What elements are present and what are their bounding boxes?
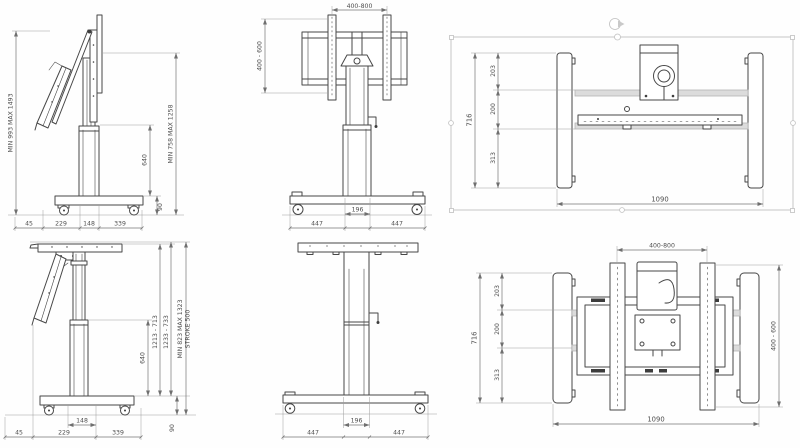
dim-depth-2: 200 <box>494 323 501 335</box>
view-front-elevated: 400-800 400 - 600 196 447 447 <box>240 0 450 235</box>
view-side-elevated: MIN 993 MAX 1493 MIN 758 MAX 1258 640 90… <box>0 0 240 235</box>
dim-base-right: 447 <box>393 430 405 437</box>
dim-base-left: 447 <box>307 430 319 437</box>
motor-unit-plan <box>640 45 678 100</box>
dim-depth-2: 229 <box>55 221 67 228</box>
dim-depth-overall: 716 <box>471 332 479 345</box>
dim-range-mid: 1233 - 733 <box>163 315 170 349</box>
dim-range-inner: 1213 - 713 <box>152 315 159 349</box>
dim-depth-1: 203 <box>490 65 497 77</box>
dim-column-width: 148 <box>76 418 88 425</box>
corner-mark-icon <box>450 209 454 213</box>
dim-vesa-height: 400 - 600 <box>257 41 264 71</box>
dim-base-right: 447 <box>391 221 403 228</box>
dim-depth-1: 45 <box>15 430 23 437</box>
dim-depth-overall: 716 <box>466 114 474 127</box>
dimensions: 716 203 200 313 1090 <box>466 53 764 207</box>
dim-base-mid: 196 <box>352 207 364 214</box>
dim-depth-3: 339 <box>112 430 124 437</box>
drawing-sheet: MIN 993 MAX 1493 MIN 758 MAX 1258 640 90… <box>0 0 800 448</box>
corner-mark-icon <box>791 209 795 213</box>
dim-depth-2: 200 <box>490 103 497 115</box>
dim-vesa-height: 400 - 600 <box>771 321 778 351</box>
dim-vesa-width: 400-800 <box>649 243 675 250</box>
dim-depth-1: 45 <box>25 221 33 228</box>
dim-base-left: 447 <box>311 221 323 228</box>
dim-base-height: 90 <box>157 203 164 211</box>
dim-depth-2: 229 <box>58 430 70 437</box>
dim-base-height: 90 <box>169 424 176 432</box>
dim-width: 1090 <box>647 416 664 424</box>
dim-base-mid: 196 <box>351 418 363 425</box>
dimensions: 640 1213 - 713 1233 - 733 MIN 823 MAX 13… <box>4 242 192 440</box>
edge-mark-icon <box>791 121 796 126</box>
corner-mark-icon <box>450 36 454 40</box>
base-assembly <box>40 396 134 415</box>
dim-height-mount: MIN 758 MAX 1258 <box>168 104 175 163</box>
dim-depth-4: 339 <box>114 221 126 228</box>
corner-mark-icon <box>791 36 795 40</box>
lift-column <box>70 252 88 396</box>
display-assembly <box>35 15 102 130</box>
dim-height-overall: MIN 993 MAX 1493 <box>8 93 15 152</box>
dim-column: 640 <box>142 154 149 166</box>
view-front-lowered: 196 447 447 <box>255 232 455 448</box>
dim-depth-1: 203 <box>494 285 501 297</box>
edge-mark-icon <box>620 208 625 213</box>
dim-range-outer-2: STROKE 500 <box>185 310 192 349</box>
view-side-lowered: 640 1213 - 713 1233 - 733 MIN 823 MAX 13… <box>0 232 240 448</box>
dim-depth-3: 313 <box>490 152 497 164</box>
view-rear-mount: 400-800 716 203 200 313 400 - 600 1090 <box>455 235 800 448</box>
dim-depth-3: 148 <box>83 221 95 228</box>
dim-range-outer-1: MIN 823 MAX 1323 <box>177 299 184 358</box>
lift-column <box>344 252 380 395</box>
dim-depth-3: 313 <box>494 369 501 381</box>
view-top-plan: 716 203 200 313 1090 <box>448 8 800 220</box>
dim-width: 1090 <box>651 196 668 204</box>
edge-mark-icon <box>449 121 454 126</box>
folded-screen <box>32 254 66 325</box>
motor-unit <box>635 262 680 356</box>
dim-column: 640 <box>140 352 147 364</box>
base-assembly <box>283 392 428 413</box>
dim-vesa-width: 400-800 <box>347 3 373 10</box>
